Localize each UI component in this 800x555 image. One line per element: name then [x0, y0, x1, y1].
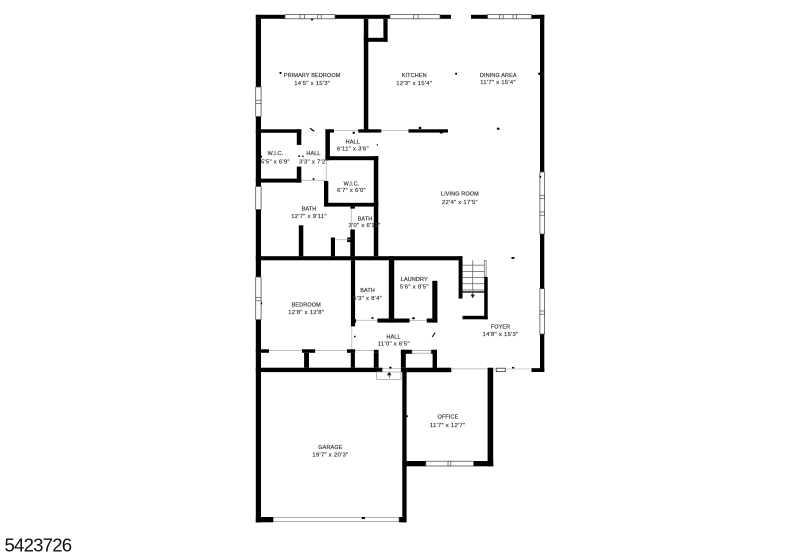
svg-text:HALL: HALL — [346, 140, 360, 146]
svg-text:5423726: 5423726 — [5, 535, 72, 555]
svg-text:OFFICE: OFFICE — [438, 415, 459, 421]
svg-text:5'3" x 8'4": 5'3" x 8'4" — [353, 296, 382, 302]
svg-text:W.I.C.: W.I.C. — [344, 181, 360, 187]
svg-text:22'4" x 17'5": 22'4" x 17'5" — [442, 200, 478, 206]
svg-text:FOYER: FOYER — [491, 325, 511, 331]
svg-text:12'7" x 9'11": 12'7" x 9'11" — [291, 214, 327, 220]
svg-text:19'7" x 20'3": 19'7" x 20'3" — [312, 453, 348, 459]
svg-text:3'0" x 6'11": 3'0" x 6'11" — [349, 223, 381, 229]
svg-text:14'8" x 15'3": 14'8" x 15'3" — [483, 332, 519, 338]
svg-text:W.I.C.: W.I.C. — [268, 151, 284, 157]
svg-text:11'0" x 6'5": 11'0" x 6'5" — [378, 342, 410, 348]
svg-text:PRIMARY BEDROOM: PRIMARY BEDROOM — [284, 73, 341, 79]
svg-text:14'5" x 15'3": 14'5" x 15'3" — [294, 81, 330, 87]
svg-text:KITCHEN: KITCHEN — [402, 73, 427, 79]
svg-text:6'7" x 6'0": 6'7" x 6'0" — [337, 188, 366, 194]
svg-text:BATH: BATH — [360, 288, 375, 294]
svg-text:GARAGE: GARAGE — [318, 445, 342, 451]
svg-text:BATH: BATH — [302, 207, 317, 213]
svg-text:DINING AREA: DINING AREA — [480, 73, 517, 79]
svg-text:LAUNDRY: LAUNDRY — [401, 277, 428, 283]
svg-text:BEDROOM: BEDROOM — [292, 303, 322, 309]
svg-text:11'7" x 12'7": 11'7" x 12'7" — [430, 423, 466, 429]
svg-text:BATH: BATH — [358, 217, 373, 223]
svg-text:6'11" x 3'6": 6'11" x 3'6" — [337, 147, 369, 153]
svg-text:LIVING ROOM: LIVING ROOM — [441, 191, 479, 197]
svg-text:11'7" x 15'4": 11'7" x 15'4" — [480, 80, 516, 86]
svg-text:5'6" x 8'5": 5'6" x 8'5" — [400, 284, 429, 290]
svg-text:HALL: HALL — [306, 151, 320, 157]
svg-text:5'5" x 6'9": 5'5" x 6'9" — [261, 159, 290, 165]
svg-text:12'3" x 15'4": 12'3" x 15'4" — [396, 81, 432, 87]
svg-text:HALL: HALL — [386, 335, 400, 341]
svg-text:12'8" x 12'8": 12'8" x 12'8" — [288, 310, 324, 316]
svg-text:3'3" x 7'2": 3'3" x 7'2" — [299, 159, 328, 165]
